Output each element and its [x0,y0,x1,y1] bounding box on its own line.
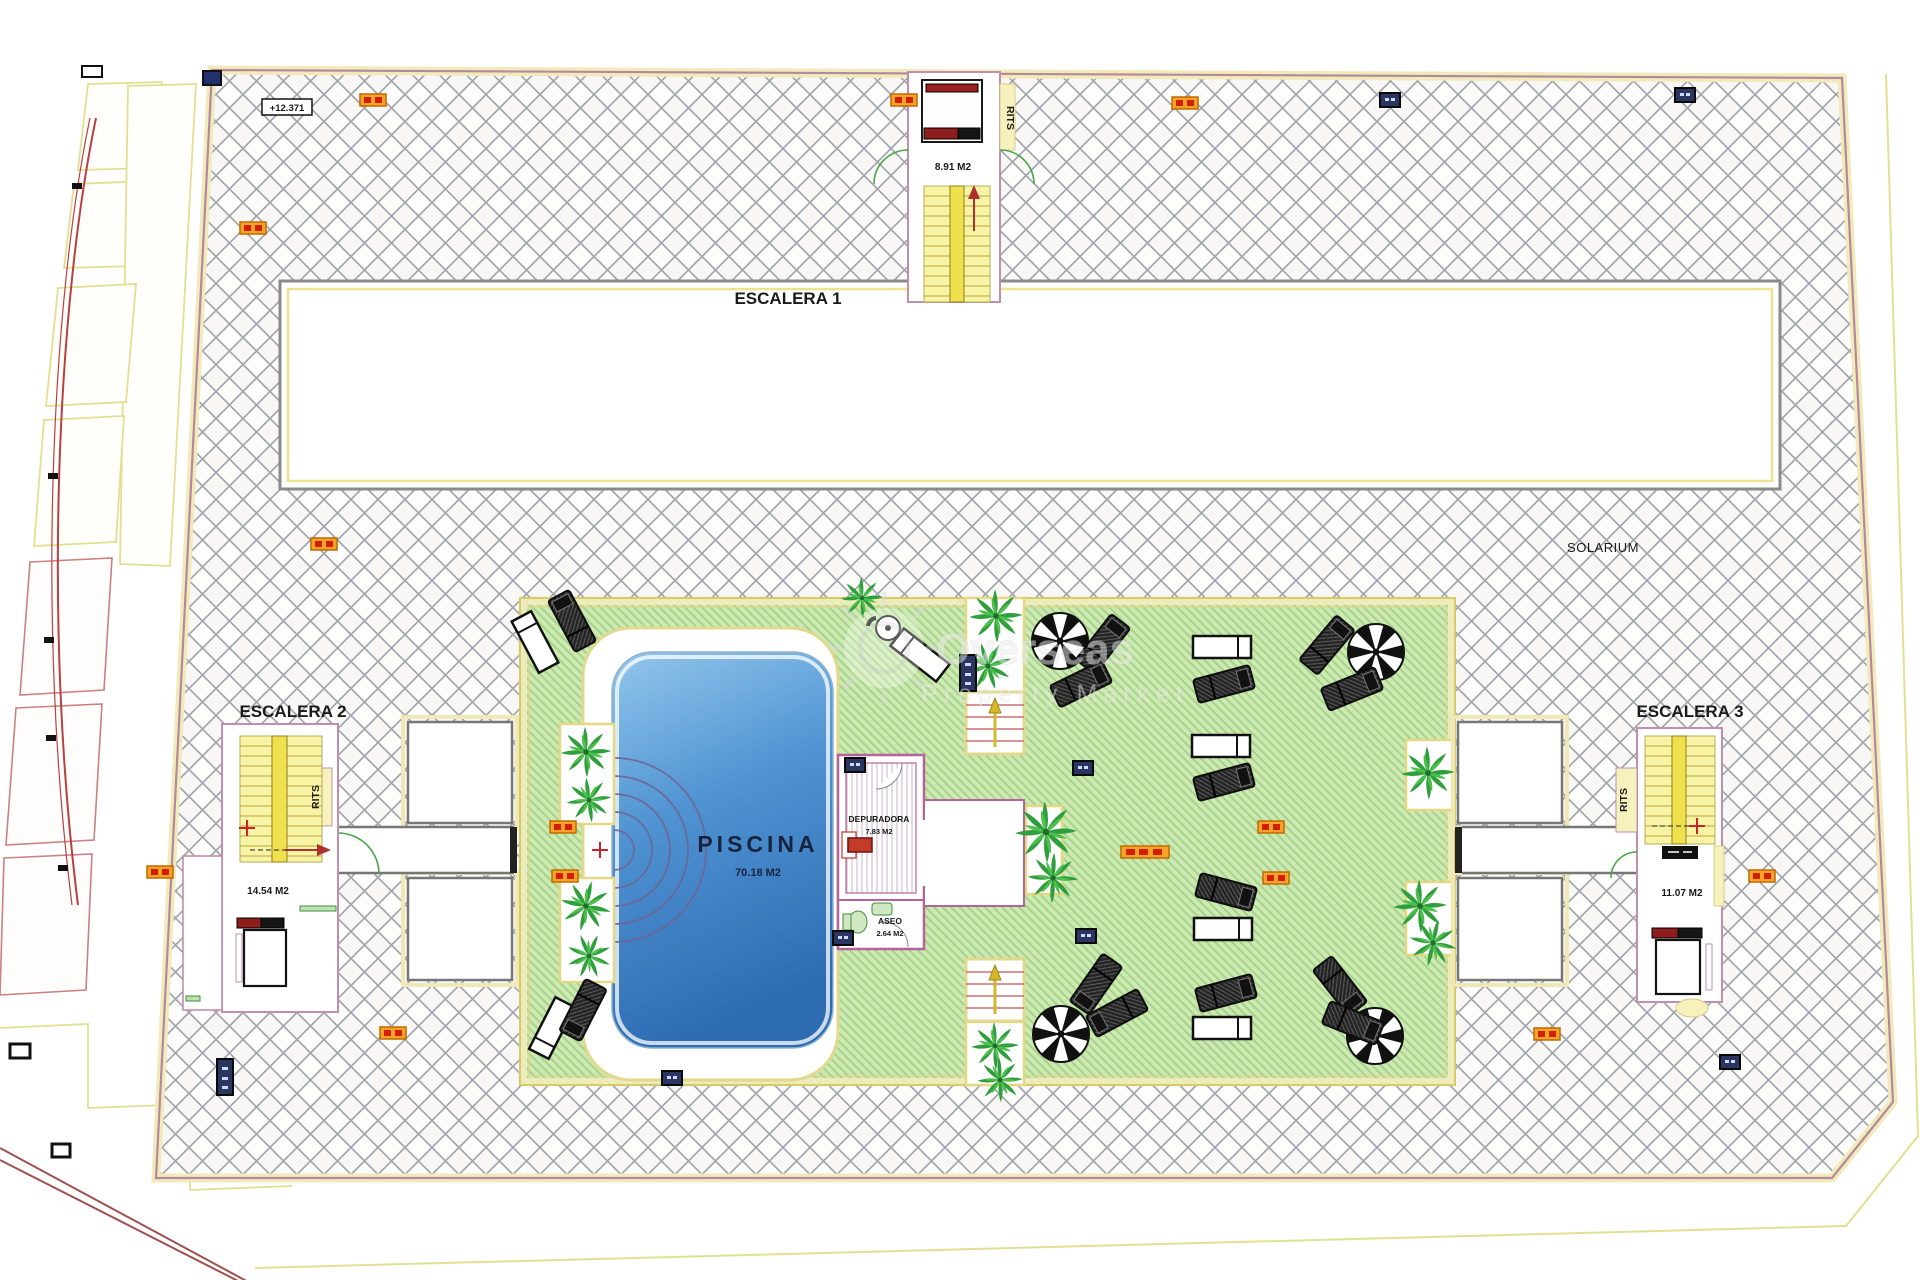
escalera-3-area: 11.07 M2 [1661,888,1703,899]
depuradora-label: DEPURADORA [849,814,910,824]
marker-navy-tall-icon [217,1059,233,1095]
toilet-fixture [849,911,867,933]
floor-plan-canvas: ESCALERA 1 8.91 M2 RITS ESCALERA 2 14.54… [0,0,1920,1280]
marker-navy-icon [845,758,865,772]
escalera-1-label: ESCALERA 1 [734,289,841,308]
level-marker-label: +12.371 [270,103,305,114]
marker-orange-icon [891,94,917,106]
lounger-white-icon [1193,636,1251,658]
marker-orange-icon [360,94,386,106]
solarium-label: SOLARIUM [1567,540,1639,555]
marker-orange-icon [311,538,337,550]
piscina-area: 70.18 M2 [735,867,781,879]
room-tag [1662,846,1698,859]
marker-orange-icon [1258,821,1284,833]
escalera-2-label: ESCALERA 2 [239,702,346,721]
escalera-2-area: 14.54 M2 [247,886,289,897]
lounger-white-icon [1193,1017,1251,1039]
corridor-right [1455,827,1637,873]
marker-orange-icon [147,866,173,878]
marker-navy-icon [1073,761,1093,775]
rits-1-label: RITS [1004,106,1016,130]
steps-icon [966,959,1024,1021]
parasol-icon [1033,1006,1089,1062]
lounger-white-icon [1192,735,1250,757]
marker-orange-icon [1749,870,1775,882]
marker-orange-icon [552,870,578,882]
marker-orange-icon [380,1027,406,1039]
marker-orange-icon [1172,97,1198,109]
rits-2-label: RITS [310,785,322,809]
corridor-left [332,827,517,874]
marker-navy-icon [1076,929,1096,943]
marker-navy-icon [662,1071,682,1085]
marker-navy-icon [833,931,853,945]
marker-orange-icon [1263,872,1289,884]
floor-plan-drawing: ESCALERA 1 8.91 M2 RITS ESCALERA 2 14.54… [0,0,1920,1280]
escalera-3-label: ESCALERA 3 [1636,702,1743,721]
watermark-line2: Property Market [921,680,1189,708]
depuradora-area: 7.83 M2 [865,827,892,836]
elevator-2 [244,930,286,986]
escalera-1-area: 8.91 M2 [935,162,972,173]
watermark-logo [844,608,924,688]
marker-navy-icon [1720,1055,1740,1069]
elevator-3 [1656,940,1700,994]
aseo-label: ASEO [878,916,902,926]
marker-orange-icon [1534,1028,1560,1040]
marker-orange-icon [550,821,576,833]
watermark-line1: Overseas [936,625,1134,674]
void-rectangle [280,281,1780,489]
white-room [921,800,1024,906]
sink-fixture [872,903,892,915]
rits-3-label: RITS [1618,788,1630,812]
marker-orange-icon [240,222,266,234]
piscina-label: PISCINA [697,831,818,857]
lounger-white-icon [1194,918,1252,940]
marker-navy-icon [1380,93,1400,107]
aseo-area: 2.64 M2 [876,929,903,938]
left-exterior-balconies [0,558,112,995]
marker-navy-icon [1675,88,1695,102]
marker-orange-long-icon [1121,846,1169,858]
